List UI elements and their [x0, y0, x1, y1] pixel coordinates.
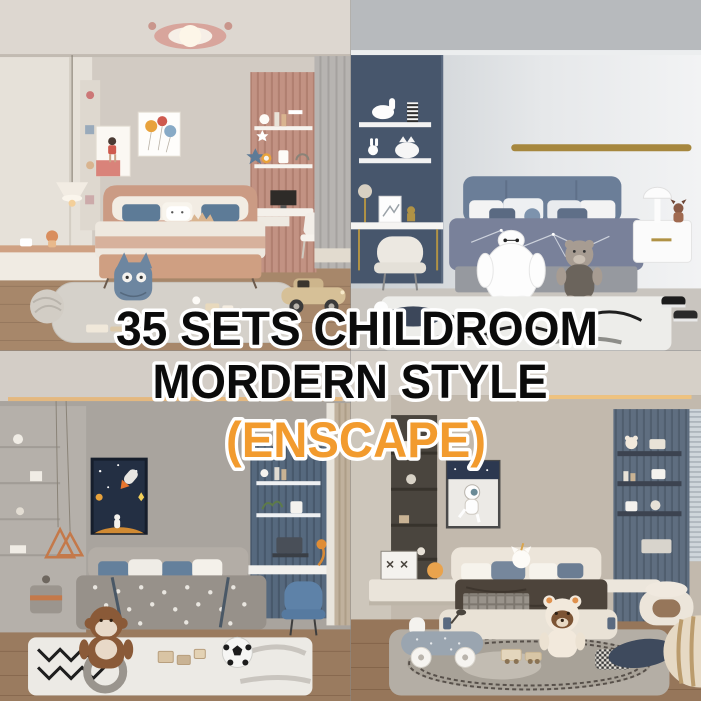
window-blinds: [689, 409, 701, 561]
room-photo-bottom-right: [351, 351, 701, 701]
wall-art-balloons: [138, 112, 180, 156]
wall-art-girl: [96, 126, 130, 176]
astronaut-wall-art: [447, 461, 499, 527]
geometric-rug: [374, 296, 671, 350]
cover-collage: 35 SETS CHILDROOM MORDERN STYLE (ENSCAPE…: [0, 0, 701, 701]
photo-grid: [0, 0, 701, 701]
gold-wall-strip: [511, 144, 691, 151]
knot-ball-stool: [30, 289, 64, 323]
bed: [439, 543, 617, 639]
area-rug: [52, 282, 298, 342]
soccer-ball: [222, 637, 252, 667]
room-photo-bottom-left: [0, 351, 351, 701]
curtain-window-right: [326, 403, 350, 625]
room-photo-top-left: [0, 0, 351, 351]
zigzag-rug: [28, 637, 312, 695]
room-photo-top-right: [351, 0, 701, 351]
wardrobe-left: [0, 57, 100, 249]
curtain-right: [314, 56, 350, 268]
